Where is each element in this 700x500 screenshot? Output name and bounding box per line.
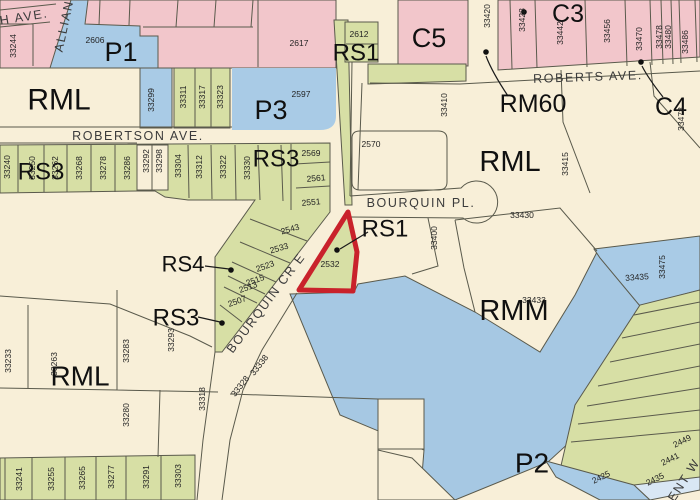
parcel-label: 33240 <box>2 155 12 179</box>
parcel-label: 33293 <box>166 328 176 352</box>
zone-area-pink-topleft[interactable] <box>0 0 336 68</box>
parcel-label: 33262 <box>50 156 60 180</box>
zone-label: RM60 <box>500 90 567 118</box>
parcel-label: 33311 <box>178 85 188 108</box>
zone-label: RS4 <box>162 252 205 277</box>
parcel-label: 33291 <box>141 465 151 489</box>
parcel-label: 2551 <box>301 196 321 208</box>
parcel-label: 33480 <box>663 25 673 49</box>
parcel-label: 33323 <box>215 85 225 109</box>
street-label: BOURQUIN PL. <box>367 196 476 210</box>
zone-label: P1 <box>104 37 137 67</box>
leader-dot-rm60 <box>483 49 489 55</box>
parcel-label: 2612 <box>350 29 369 39</box>
parcel-strip-bottomleft[interactable] <box>0 455 195 500</box>
parcel-label: 33283 <box>121 339 131 363</box>
parcel-label: 33415 <box>560 152 570 176</box>
parcel-label: 33241 <box>14 467 24 491</box>
parcel-label: 33470 <box>634 27 644 51</box>
parcel-label: 33255 <box>46 467 56 491</box>
parcel-label: 33442 <box>555 21 565 45</box>
parcel-label: 33268 <box>74 156 84 180</box>
parcel-label: 33298 <box>154 149 164 173</box>
zone-label: RML <box>27 84 90 117</box>
parcel-label: 33318 <box>197 387 207 411</box>
parcel-corner-cream[interactable] <box>378 399 424 449</box>
zone-label: P2 <box>515 448 549 479</box>
parcel-label: 33478 <box>676 107 686 131</box>
parcel-label: 33486 <box>680 30 690 54</box>
zone-label: RS3 <box>153 305 200 332</box>
leader-dot-rs1 <box>334 247 340 253</box>
street-label: ROBERTSON AVE. <box>72 129 204 143</box>
parcel-label: 33410 <box>439 93 449 117</box>
zone-label: P3 <box>254 95 287 125</box>
zone-label: RS1 <box>362 216 409 243</box>
parcel-label: 2569 <box>302 148 321 158</box>
parcel-label: 33265 <box>77 466 87 490</box>
zone-label: RS1 <box>333 40 380 67</box>
parcel-label: 33420 <box>482 4 492 28</box>
parcel-label: 33299 <box>146 88 156 112</box>
zone-label: RML <box>50 361 109 392</box>
parcel-label: 33280 <box>121 403 131 427</box>
parcel-label: 33278 <box>98 156 108 180</box>
parcel-label: 2532 <box>321 259 340 269</box>
parcel-label: 33322 <box>218 155 228 179</box>
parcel-label: 33475 <box>657 255 667 279</box>
parcel-label: 2606 <box>86 35 105 45</box>
parcel-strip-roberts-south[interactable] <box>368 64 466 84</box>
parcel-label: 33330 <box>242 156 252 180</box>
parcel-label: 33428 <box>517 8 527 32</box>
parcel-label: 33304 <box>173 154 183 178</box>
parcel-label: 2561 <box>306 172 326 184</box>
zone-label: RML <box>479 146 540 178</box>
parcel-label: 33277 <box>106 465 116 489</box>
parcel-33299-strip[interactable] <box>140 68 172 128</box>
parcel-label: 33292 <box>141 149 151 173</box>
parcel-label: 33244 <box>8 34 18 58</box>
parcel-label: 33312 <box>194 155 204 179</box>
zoning-map-viewport[interactable]: P1RMLRS3P3RS3RS1C5C3RM60C4RMLRS1RS4RS3RM… <box>0 0 700 500</box>
parcel-label: 33263 <box>49 352 59 376</box>
parcel-label: 33456 <box>602 19 612 43</box>
parcel-label: 33433 <box>522 295 546 305</box>
parcel-label: 33317 <box>197 85 207 109</box>
parcel-label: 33303 <box>173 464 183 488</box>
zone-label: C5 <box>412 23 447 53</box>
parcel-label: 33250 <box>27 156 37 180</box>
parcel-label: 33400 <box>429 226 439 250</box>
leader-dot-rs4 <box>228 267 234 273</box>
parcel-label: 33435 <box>625 271 650 283</box>
zone-label: RS3 <box>253 146 300 173</box>
parcel-label: 2570 <box>362 139 381 149</box>
leader-dot-rs3 <box>219 320 225 326</box>
parcel-label: 33233 <box>3 349 13 373</box>
parcel-label: 33430 <box>510 210 534 220</box>
parcel-label: 2617 <box>290 38 309 48</box>
parcel-label: 2597 <box>292 89 311 99</box>
zoning-map-canvas[interactable]: P1RMLRS3P3RS3RS1C5C3RM60C4RMLRS1RS4RS3RM… <box>0 0 700 500</box>
leader-dot-c4 <box>638 59 644 65</box>
parcel-label: 33286 <box>122 156 132 180</box>
